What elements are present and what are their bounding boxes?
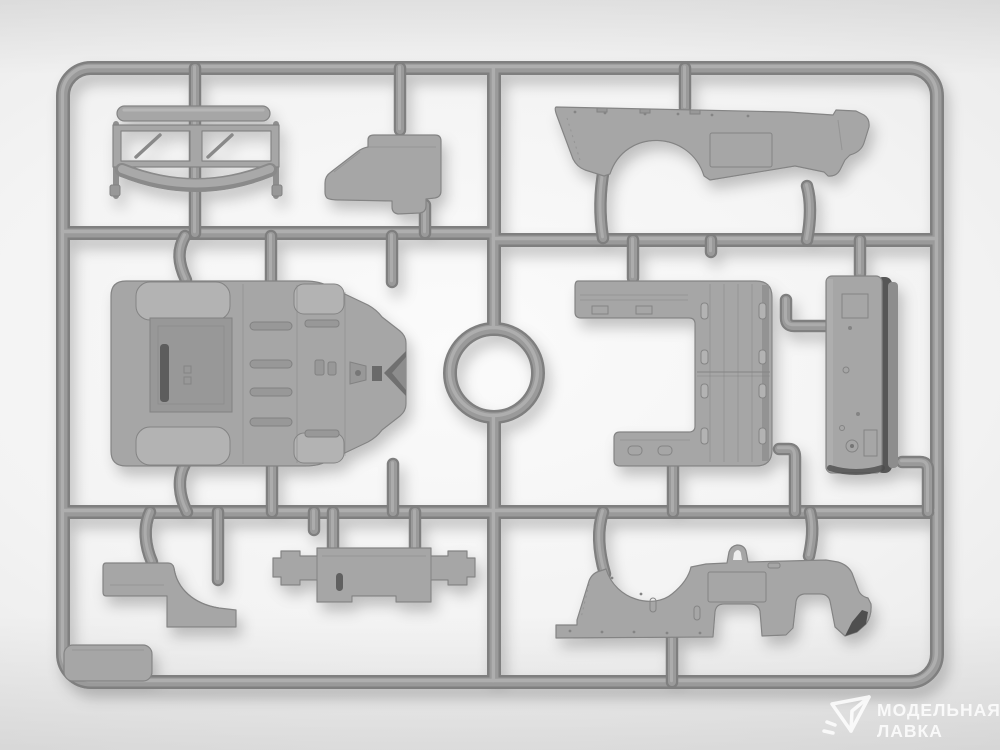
bulkhead-panel-part <box>273 548 475 602</box>
bulkhead-slot <box>336 573 343 591</box>
watermark: МОДЕЛЬНАЯ ЛАВКА <box>824 697 1000 741</box>
pedal <box>328 362 336 375</box>
body-side-panel-upper <box>555 107 869 180</box>
windshield-glass-frame <box>113 125 279 167</box>
watermark-line1: МОДЕЛЬНАЯ <box>877 700 1000 720</box>
engine-cover-part <box>575 281 772 466</box>
sprue-photo: МОДЕЛЬНАЯ ЛАВКА <box>0 0 1000 750</box>
seat-cowl-part <box>325 135 441 214</box>
wiper-blades <box>136 135 232 157</box>
wheel-housing <box>136 282 230 320</box>
body-tub-part <box>111 281 406 466</box>
watermark-line2: ЛАВКА <box>877 721 943 741</box>
windshield-frame-part <box>110 106 282 196</box>
corner-floor-panel-part <box>64 645 152 681</box>
sprue <box>62 67 937 683</box>
floor-rib <box>250 360 292 368</box>
paper-plane-icon <box>824 697 869 733</box>
photo-stage: МОДЕЛЬНАЯ ЛАВКА <box>0 0 1000 750</box>
pedal <box>315 360 324 375</box>
windshield-top-bar <box>117 106 270 121</box>
floor-rib <box>250 418 292 426</box>
floor-rib <box>250 322 292 330</box>
wheel-housing <box>136 427 230 465</box>
wheel-housing <box>294 284 344 314</box>
floor-rib <box>250 388 292 396</box>
front-panel-part <box>826 276 898 473</box>
